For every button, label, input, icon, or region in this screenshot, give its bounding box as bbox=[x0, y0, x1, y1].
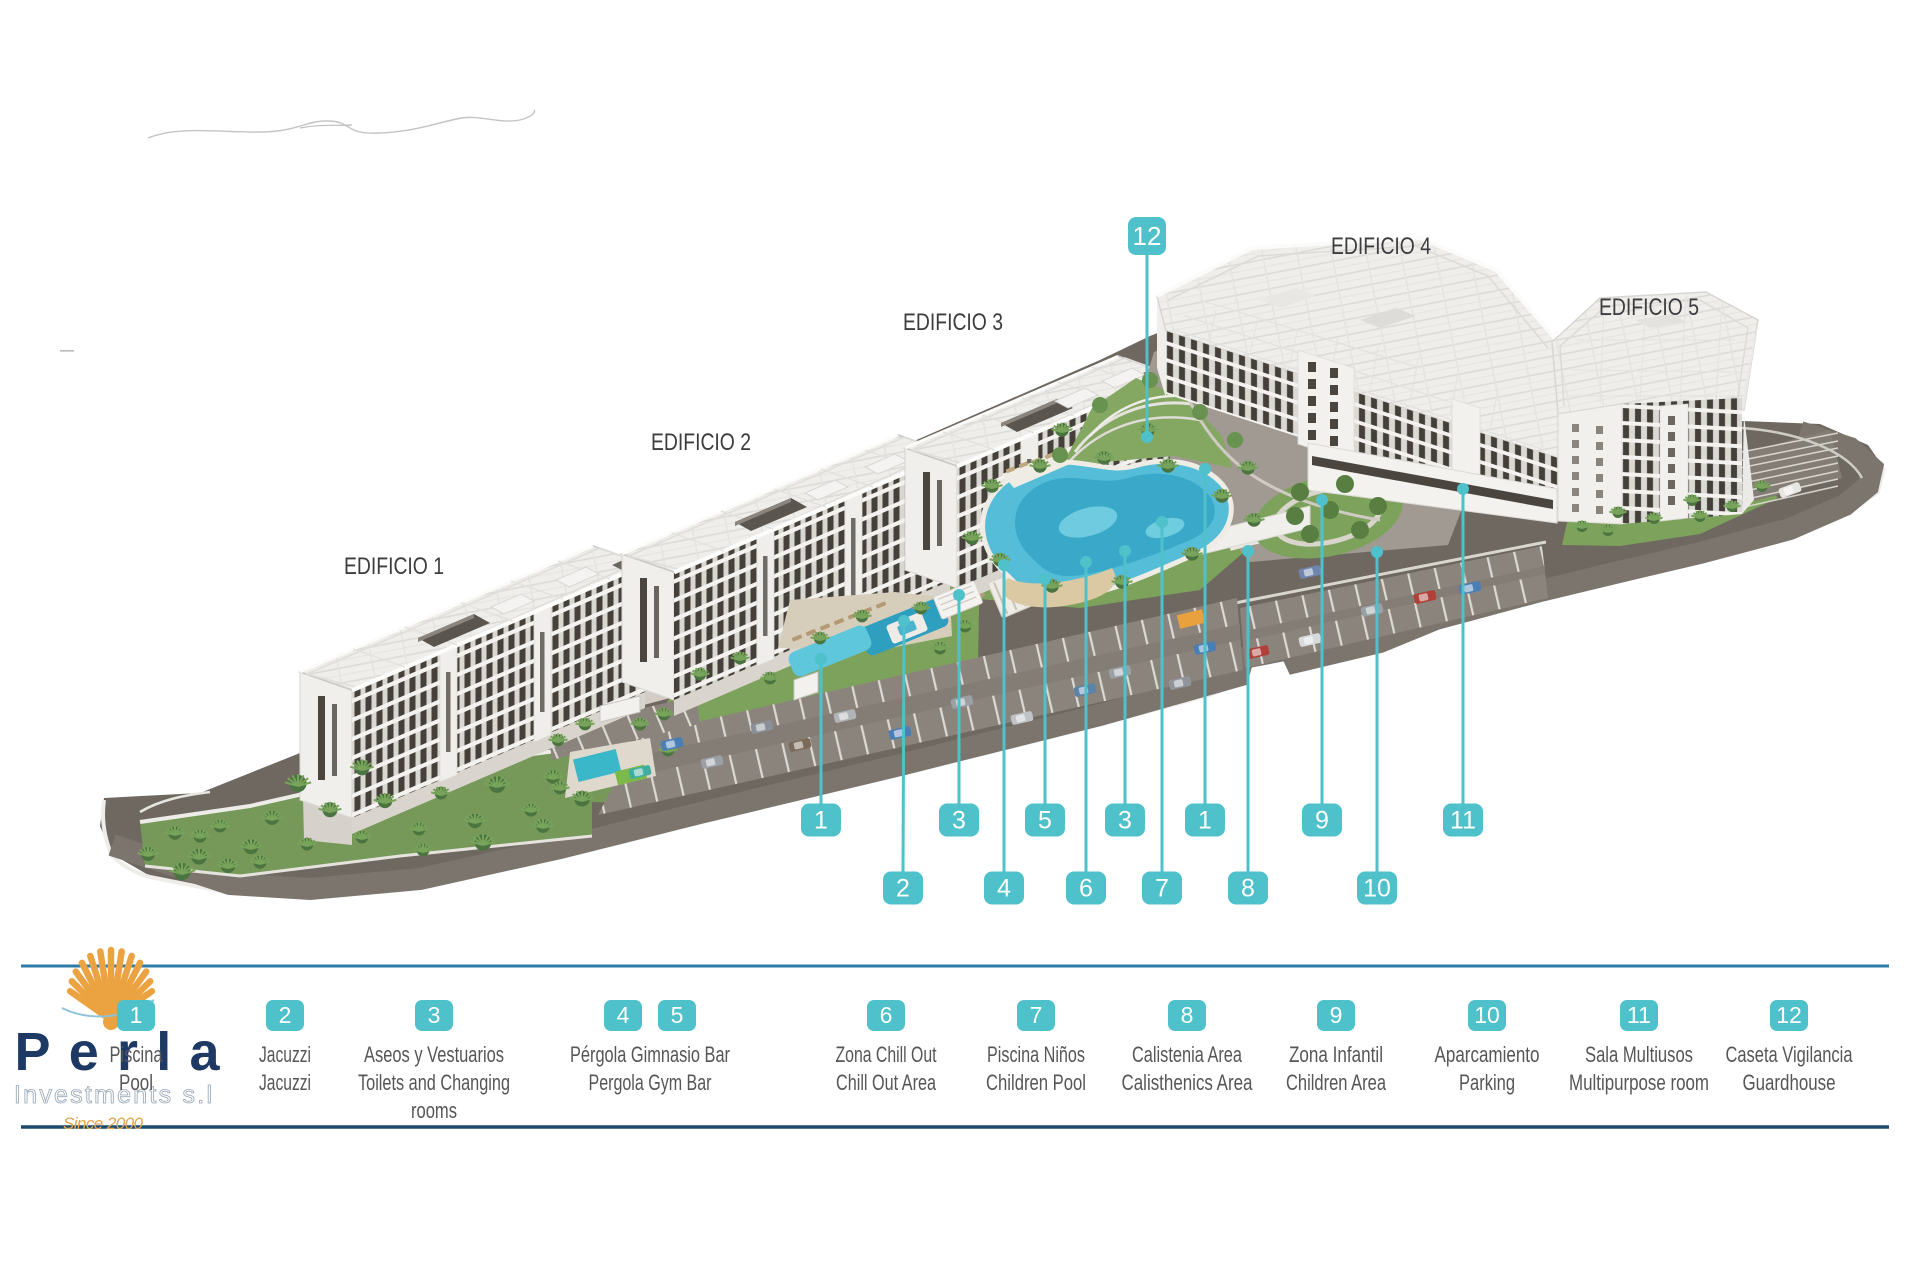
svg-text:Pérgola Gimnasio Bar: Pérgola Gimnasio Bar bbox=[570, 1042, 730, 1067]
svg-text:Aparcamiento: Aparcamiento bbox=[1435, 1042, 1540, 1067]
svg-text:Piscina: Piscina bbox=[110, 1042, 164, 1067]
svg-text:Piscina Niños: Piscina Niños bbox=[987, 1042, 1085, 1067]
svg-text:2: 2 bbox=[896, 875, 910, 903]
svg-text:Jacuzzi: Jacuzzi bbox=[259, 1042, 311, 1067]
svg-text:Children Pool: Children Pool bbox=[986, 1070, 1086, 1095]
svg-text:7: 7 bbox=[1155, 875, 1169, 903]
svg-text:6: 6 bbox=[880, 1002, 893, 1028]
svg-text:Toilets and Changing: Toilets and Changing bbox=[358, 1070, 510, 1095]
svg-text:Calistenia Area: Calistenia Area bbox=[1132, 1042, 1243, 1067]
svg-text:7: 7 bbox=[1030, 1002, 1043, 1028]
svg-text:Children Area: Children Area bbox=[1286, 1070, 1387, 1095]
svg-text:4: 4 bbox=[997, 875, 1011, 903]
svg-text:Aseos y Vestuarios: Aseos y Vestuarios bbox=[364, 1042, 504, 1067]
svg-text:10: 10 bbox=[1363, 875, 1391, 903]
svg-text:rooms: rooms bbox=[411, 1098, 457, 1123]
svg-text:8: 8 bbox=[1241, 875, 1255, 903]
svg-text:Pool: Pool bbox=[119, 1070, 153, 1095]
svg-text:Jacuzzi: Jacuzzi bbox=[259, 1070, 311, 1095]
svg-text:9: 9 bbox=[1330, 1002, 1343, 1028]
svg-text:Parking: Parking bbox=[1459, 1070, 1515, 1095]
svg-text:1: 1 bbox=[1198, 807, 1212, 835]
svg-text:6: 6 bbox=[1079, 875, 1093, 903]
svg-text:Zona Chill Out: Zona Chill Out bbox=[836, 1042, 937, 1067]
svg-text:11: 11 bbox=[1450, 807, 1476, 835]
svg-text:2: 2 bbox=[279, 1002, 292, 1028]
svg-text:Zona Infantil: Zona Infantil bbox=[1289, 1042, 1383, 1067]
svg-text:5: 5 bbox=[671, 1002, 684, 1028]
svg-text:12: 12 bbox=[1776, 1002, 1802, 1028]
svg-text:Sala Multiusos: Sala Multiusos bbox=[1585, 1042, 1693, 1067]
svg-text:12: 12 bbox=[1133, 221, 1162, 251]
svg-text:10: 10 bbox=[1474, 1002, 1500, 1028]
svg-text:EDIFICIO 4: EDIFICIO 4 bbox=[1331, 233, 1431, 260]
svg-text:9: 9 bbox=[1315, 807, 1329, 835]
svg-text:Multipurpose room: Multipurpose room bbox=[1569, 1070, 1709, 1095]
svg-text:Pergola Gym Bar: Pergola Gym Bar bbox=[589, 1070, 712, 1095]
svg-text:Investments s.l: Investments s.l bbox=[14, 1081, 212, 1109]
svg-text:5: 5 bbox=[1038, 807, 1052, 835]
svg-text:3: 3 bbox=[428, 1002, 441, 1028]
svg-text:Calisthenics Area: Calisthenics Area bbox=[1122, 1070, 1254, 1095]
svg-text:Caseta Vigilancia: Caseta Vigilancia bbox=[1726, 1042, 1854, 1067]
svg-text:EDIFICIO 3: EDIFICIO 3 bbox=[903, 309, 1003, 336]
svg-text:3: 3 bbox=[952, 807, 966, 835]
svg-text:1: 1 bbox=[130, 1002, 143, 1028]
svg-text:1: 1 bbox=[814, 807, 828, 835]
svg-text:EDIFICIO 5: EDIFICIO 5 bbox=[1599, 294, 1699, 321]
svg-text:8: 8 bbox=[1181, 1002, 1194, 1028]
svg-text:3: 3 bbox=[1118, 807, 1132, 835]
svg-text:Since 2000: Since 2000 bbox=[63, 1114, 144, 1133]
svg-text:EDIFICIO 1: EDIFICIO 1 bbox=[344, 553, 444, 580]
svg-text:Chill Out Area: Chill Out Area bbox=[836, 1070, 937, 1095]
svg-text:11: 11 bbox=[1627, 1002, 1651, 1028]
svg-text:EDIFICIO 2: EDIFICIO 2 bbox=[651, 429, 751, 456]
svg-text:4: 4 bbox=[617, 1002, 630, 1028]
svg-text:Guardhouse: Guardhouse bbox=[1743, 1070, 1836, 1095]
